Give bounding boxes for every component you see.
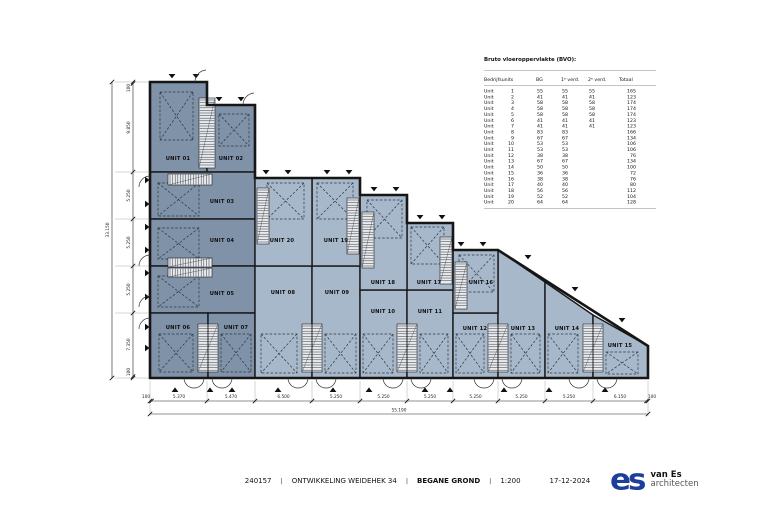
table-cell-unit-number: 14: [508, 165, 514, 171]
dim-label: 5.250: [126, 283, 132, 296]
unit-label: UNIT 03: [210, 199, 235, 205]
table-cell-unit: Unit: [484, 170, 494, 176]
table-cell-v1: 58: [562, 100, 568, 106]
table-cell-bg: 58: [537, 106, 543, 112]
table-cell-total: 76: [630, 176, 636, 182]
table-cell-bg: 52: [537, 194, 543, 200]
entry-arrow-down-icon: [480, 242, 487, 246]
table-cell-v1: 83: [562, 129, 568, 135]
entry-arrow-down-icon: [525, 255, 532, 259]
table-cell-total: 123: [627, 118, 636, 124]
dim-label: 5.250: [469, 394, 482, 400]
separator: |: [489, 477, 491, 485]
dim-label: 7.350: [126, 338, 132, 351]
table-cell-total: 134: [627, 159, 636, 165]
door-arc: [139, 176, 150, 187]
table-cell-v1: 41: [562, 118, 568, 124]
unit-label: UNIT 14: [555, 326, 580, 332]
table-cell-unit: Unit: [484, 182, 494, 188]
table-column-header: BG: [536, 77, 543, 83]
table-cell-unit: Unit: [484, 106, 494, 112]
door-arc: [139, 255, 150, 266]
table-cell-total: 76: [630, 153, 636, 159]
table-cell-unit: Unit: [484, 129, 494, 135]
door-arc: [184, 378, 204, 388]
table-cell-unit-number: 10: [508, 141, 514, 147]
entry-arrow-up-icon: [207, 387, 214, 392]
table-cell-unit: Unit: [484, 94, 494, 100]
project-title: ONTWIKKELING WEIDEHEK 34: [292, 477, 397, 485]
dim-label: 5.250: [126, 189, 132, 202]
table-cell-v1: 56: [562, 188, 568, 194]
table-cell-unit: Unit: [484, 124, 494, 130]
table-cell-v1: 40: [562, 182, 568, 188]
table-cell-v1: 58: [562, 112, 568, 118]
floor-plan-drawing: UNIT 01UNIT 02UNIT 03UNIT 04UNIT 05UNIT …: [0, 0, 780, 520]
dim-label: 5.250: [377, 394, 390, 400]
entry-arrow-down-icon: [371, 187, 378, 191]
unit-label: UNIT 09: [325, 290, 350, 296]
table-cell-total: 104: [627, 194, 636, 200]
table-cell-v1: 41: [562, 94, 568, 100]
table-cell-bg: 40: [537, 182, 543, 188]
entry-arrow-up-icon: [366, 387, 373, 392]
table-cell-v1: 58: [562, 106, 568, 112]
door-arc: [597, 378, 617, 388]
door-arc: [212, 378, 232, 388]
unit-label: UNIT 07: [224, 325, 249, 331]
bvo-table: Bruto vloeroppervlakte (BVO):Bedrijfsuni…: [484, 57, 656, 209]
dim-label: 6.150: [614, 394, 627, 400]
table-column-header: Totaal: [618, 77, 633, 83]
table-cell-total: 112: [627, 188, 636, 194]
table-cell-total: 100: [627, 165, 636, 171]
table-cell-v2: 55: [589, 89, 595, 95]
separator: |: [281, 477, 283, 485]
table-cell-v2: 58: [589, 112, 595, 118]
door-arc: [288, 378, 308, 388]
dim-label: 6.500: [277, 394, 290, 400]
entry-arrow-down-icon: [285, 170, 292, 174]
unit-label: UNIT 13: [511, 326, 536, 332]
table-cell-unit: Unit: [484, 118, 494, 124]
table-title: Bruto vloeroppervlakte (BVO):: [484, 57, 576, 63]
table-column-header: 1ᵉ verd.: [561, 77, 579, 83]
table-cell-unit-number: 5: [511, 112, 514, 118]
table-cell-bg: 38: [537, 176, 543, 182]
table-cell-unit-number: 4: [511, 106, 514, 112]
table-cell-bg: 41: [537, 118, 543, 124]
table-cell-unit: Unit: [484, 176, 494, 182]
dim-label: 5.250: [563, 394, 576, 400]
entry-arrow-down-icon: [393, 187, 400, 191]
table-cell-bg: 58: [537, 100, 543, 106]
table-cell-unit-number: 11: [508, 147, 514, 153]
entry-arrow-down-icon: [169, 74, 176, 78]
dim-label: 100: [142, 394, 150, 400]
door-arc: [316, 378, 336, 388]
entry-arrow-down-icon: [458, 242, 465, 246]
dim-total-label: 33.150: [105, 222, 111, 237]
table-cell-unit-number: 19: [508, 194, 514, 200]
table-cell-total: 174: [627, 106, 636, 112]
table-cell-unit: Unit: [484, 112, 494, 118]
dim-label: 9.850: [126, 121, 132, 134]
table-cell-bg: 67: [537, 159, 543, 165]
table-cell-bg: 36: [537, 170, 543, 176]
table-cell-v1: 50: [562, 165, 568, 171]
table-cell-v1: 38: [562, 153, 568, 159]
drawing-sheet: UNIT 01UNIT 02UNIT 03UNIT 04UNIT 05UNIT …: [0, 0, 780, 520]
entry-arrow-up-icon: [501, 387, 508, 392]
entry-arrow-down-icon: [619, 318, 626, 322]
entry-arrow-up-icon: [275, 387, 282, 392]
entry-arrow-up-icon: [330, 387, 337, 392]
unit-label: UNIT 05: [210, 291, 235, 297]
dim-label: 100: [126, 368, 132, 376]
table-cell-total: 174: [627, 112, 636, 118]
table-cell-unit-number: 1: [511, 89, 514, 95]
entry-arrow-down-icon: [572, 287, 579, 291]
table-cell-v1: 64: [562, 200, 568, 206]
door-arc: [411, 378, 431, 388]
table-cell-unit-number: 9: [511, 135, 514, 141]
table-cell-v2: 58: [589, 106, 595, 112]
drawing-date: 17-12-2024: [550, 477, 591, 485]
table-cell-total: 123: [627, 124, 636, 130]
entry-arrow-up-icon: [546, 387, 553, 392]
unit-label: UNIT 20: [270, 238, 295, 244]
dim-label: 5.250: [330, 394, 343, 400]
dim-label: 100: [648, 394, 656, 400]
unit-label: UNIT 17: [417, 280, 442, 286]
table-cell-unit: Unit: [484, 135, 494, 141]
unit-label: UNIT 08: [271, 290, 296, 296]
table-cell-total: 72: [630, 170, 636, 176]
table-cell-unit-number: 17: [508, 182, 514, 188]
entry-arrow-up-icon: [172, 387, 179, 392]
table-cell-total: 128: [627, 200, 636, 206]
table-cell-v2: 58: [589, 100, 595, 106]
table-cell-v1: 38: [562, 176, 568, 182]
table-cell-total: 165: [627, 89, 636, 95]
door-arc: [195, 70, 206, 82]
table-cell-bg: 83: [537, 129, 543, 135]
table-cell-v1: 52: [562, 194, 568, 200]
project-number: 240157: [245, 477, 272, 485]
table-cell-bg: 53: [537, 141, 543, 147]
table-cell-total: 80: [630, 182, 636, 188]
table-cell-bg: 56: [537, 188, 543, 194]
table-cell-v1: 36: [562, 170, 568, 176]
table-cell-unit: Unit: [484, 100, 494, 106]
table-cell-bg: 38: [537, 153, 543, 159]
table-cell-unit: Unit: [484, 194, 494, 200]
company-logo: es van Es architecten: [610, 459, 699, 501]
table-column-header: Bedrijfsunits: [484, 77, 514, 83]
unit-label: UNIT 19: [324, 238, 349, 244]
dim-label: 5.250: [126, 236, 132, 249]
table-cell-bg: 64: [537, 200, 543, 206]
table-cell-unit-number: 8: [511, 129, 514, 135]
entry-arrow-down-icon: [324, 170, 331, 174]
table-cell-v1: 67: [562, 135, 568, 141]
entry-arrow-down-icon: [216, 97, 223, 101]
table-column-header: 2ᵉ verd.: [588, 77, 606, 83]
door-arc: [474, 378, 494, 388]
logo-text: van Es architecten: [650, 471, 698, 490]
table-cell-v1: 53: [562, 141, 568, 147]
table-cell-v2: 41: [589, 118, 595, 124]
sheet-name: BEGANE GROND: [417, 477, 480, 485]
table-cell-bg: 58: [537, 112, 543, 118]
logo-mark-icon: es: [610, 460, 643, 500]
table-cell-unit: Unit: [484, 200, 494, 206]
drawing-scale: 1:200: [500, 477, 520, 485]
table-cell-v1: 67: [562, 159, 568, 165]
unit-label: UNIT 16: [469, 280, 494, 286]
table-cell-total: 134: [627, 135, 636, 141]
table-cell-bg: 41: [537, 124, 543, 130]
table-cell-v2: 41: [589, 94, 595, 100]
unit-label: UNIT 15: [608, 343, 633, 349]
dim-label: 100: [126, 84, 132, 92]
table-cell-unit-number: 13: [508, 159, 514, 165]
door-arc: [569, 378, 589, 388]
plan-group: UNIT 01UNIT 02UNIT 03UNIT 04UNIT 05UNIT …: [139, 70, 648, 392]
separator: |: [406, 477, 408, 485]
unit-label: UNIT 04: [210, 238, 235, 244]
table-cell-bg: 53: [537, 147, 543, 153]
table-cell-unit-number: 12: [508, 153, 514, 159]
table-cell-unit-number: 6: [511, 118, 514, 124]
table-cell-v1: 55: [562, 89, 568, 95]
table-cell-unit: Unit: [484, 165, 494, 171]
unit-label: UNIT 02: [219, 156, 244, 162]
unit-label: UNIT 18: [371, 280, 396, 286]
table-cell-bg: 41: [537, 94, 543, 100]
entry-arrow-up-icon: [447, 387, 454, 392]
entry-arrow-up-icon: [229, 387, 236, 392]
table-cell-unit-number: 16: [508, 176, 514, 182]
table-cell-unit-number: 15: [508, 170, 514, 176]
table-cell-bg: 67: [537, 135, 543, 141]
table-cell-total: 174: [627, 100, 636, 106]
table-cell-unit-number: 3: [511, 100, 514, 106]
table-cell-total: 106: [627, 147, 636, 153]
table-cell-bg: 55: [537, 89, 543, 95]
table-cell-unit: Unit: [484, 159, 494, 165]
table-cell-total: 106: [627, 141, 636, 147]
table-cell-unit-number: 20: [508, 200, 514, 206]
entry-arrow-down-icon: [263, 170, 270, 174]
entry-arrow-down-icon: [417, 215, 424, 219]
dim-total-label: 55.190: [391, 408, 406, 414]
table-cell-v2: 41: [589, 124, 595, 130]
table-cell-total: 123: [627, 94, 636, 100]
dim-label: 5.470: [225, 394, 238, 400]
table-cell-v1: 41: [562, 124, 568, 130]
unit-label: UNIT 11: [418, 309, 443, 315]
dim-label: 5.370: [173, 394, 186, 400]
entry-arrow-down-icon: [439, 215, 446, 219]
table-cell-unit: Unit: [484, 141, 494, 147]
logo-subtitle: architecten: [650, 480, 698, 490]
table-cell-unit: Unit: [484, 153, 494, 159]
table-cell-unit-number: 2: [511, 94, 514, 100]
dim-label: 5.250: [515, 394, 528, 400]
table-cell-v1: 53: [562, 147, 568, 153]
table-cell-unit: Unit: [484, 147, 494, 153]
table-cell-unit: Unit: [484, 188, 494, 194]
unit-label: UNIT 12: [463, 326, 488, 332]
unit-label: UNIT 06: [166, 325, 191, 331]
door-arc: [243, 93, 254, 105]
table-cell-unit-number: 7: [511, 124, 514, 130]
unit-label: UNIT 10: [371, 309, 396, 315]
dim-label: 5.250: [424, 394, 437, 400]
table-cell-bg: 50: [537, 165, 543, 171]
door-arc: [383, 378, 403, 388]
door-arc: [502, 378, 522, 388]
entry-arrow-down-icon: [346, 170, 353, 174]
table-cell-unit-number: 18: [508, 188, 514, 194]
table-cell-unit: Unit: [484, 89, 494, 95]
table-cell-total: 166: [627, 129, 636, 135]
unit-label: UNIT 01: [166, 156, 191, 162]
